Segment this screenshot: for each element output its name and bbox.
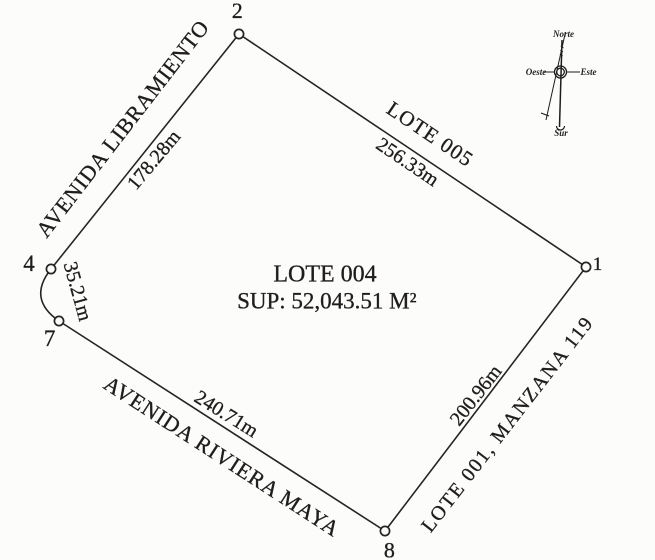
svg-text:Oeste: Oeste <box>526 67 547 77</box>
svg-text:Sur: Sur <box>554 128 568 138</box>
svg-text:SUP: 52,043.51 M²: SUP: 52,043.51 M² <box>237 289 417 314</box>
svg-text:7: 7 <box>44 326 56 351</box>
svg-text:8: 8 <box>384 538 395 560</box>
svg-text:1: 1 <box>593 254 603 275</box>
svg-text:LOTE 004: LOTE 004 <box>273 261 376 287</box>
svg-text:2: 2 <box>232 0 243 23</box>
svg-text:Norte: Norte <box>552 29 574 39</box>
svg-text:Este: Este <box>579 67 596 77</box>
svg-text:4: 4 <box>23 251 35 276</box>
